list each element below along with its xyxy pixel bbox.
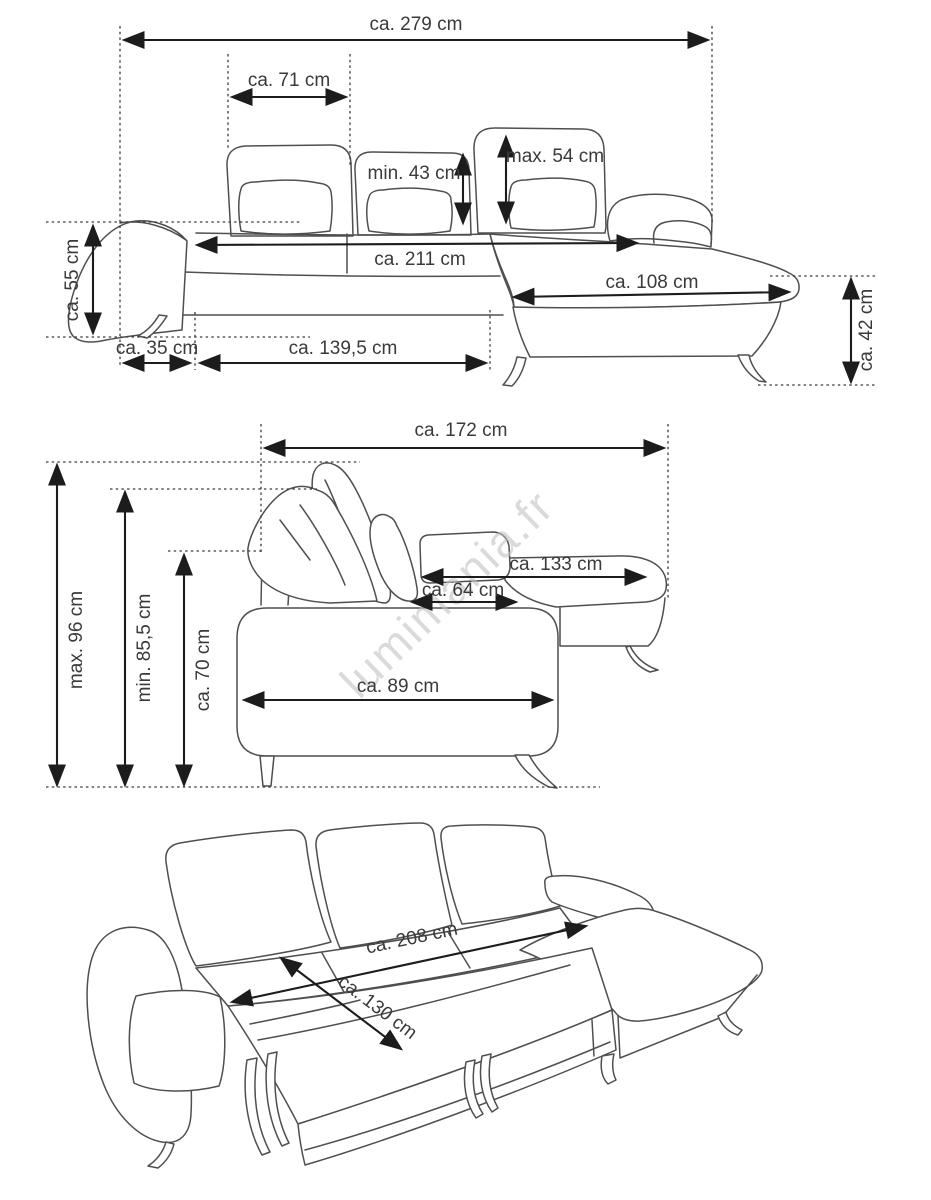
dim-height-max: max. 96 cm [57, 465, 87, 785]
dim-label-chaise-width: ca. 108 cm [606, 272, 699, 293]
dim-total-depth: ca. 172 cm [265, 420, 664, 448]
sofa-bed-linework [87, 823, 762, 1168]
side-view-figure: lumimania.fr ca. 172 cm max. 96 cm min. … [0, 415, 931, 810]
dim-label-backrest-width: ca. 71 cm [248, 70, 330, 91]
dim-seat-height: ca. 42 cm [851, 279, 877, 382]
dim-label-total-width: ca. 279 cm [370, 14, 463, 35]
sofa-side-linework [237, 463, 666, 788]
dim-label-total-depth: ca. 172 cm [415, 420, 508, 441]
dim-label-seat-height: ca. 42 cm [856, 289, 877, 371]
dim-label-armrest-width: ca. 35 cm [116, 338, 198, 359]
dim-label-side-width: ca. 89 cm [357, 676, 439, 697]
front-view-figure: ca. 279 cm ca. 71 cm min. 43 cm max. 54 … [0, 0, 931, 415]
dim-label-height-min: min. 85,5 cm [134, 594, 155, 703]
dim-sleep-section-width: ca. 139,5 cm [200, 338, 486, 363]
dim-total-width: ca. 279 cm [124, 14, 708, 40]
dim-label-headrest-min: min. 43 cm [368, 163, 461, 184]
dim-label-sleep-section-width: ca. 139,5 cm [289, 338, 398, 359]
dim-label-armrest-height: ca. 55 cm [62, 239, 83, 321]
dim-height-min: min. 85,5 cm [125, 492, 155, 785]
bed-view-figure: ca. 208 cm ca. 130 cm [0, 810, 931, 1200]
dim-backrest-height: ca. 70 cm [184, 555, 214, 785]
dim-label-height-max: max. 96 cm [66, 591, 87, 689]
dim-armrest-width: ca. 35 cm [116, 338, 198, 363]
dim-backrest-width: ca. 71 cm [232, 70, 346, 97]
dim-label-seat-width: ca. 211 cm [374, 249, 466, 270]
dim-label-seat-depth: ca. 64 cm [422, 580, 504, 601]
dim-seat-depth: ca. 64 cm [412, 580, 516, 602]
dim-label-backrest-height: ca. 70 cm [193, 629, 214, 711]
dim-label-chaise-depth: ca. 133 cm [510, 554, 603, 575]
dim-label-headrest-max: max. 54 cm [506, 146, 604, 167]
sofa-dimension-sheet: ca. 279 cm ca. 71 cm min. 43 cm max. 54 … [0, 0, 931, 1200]
